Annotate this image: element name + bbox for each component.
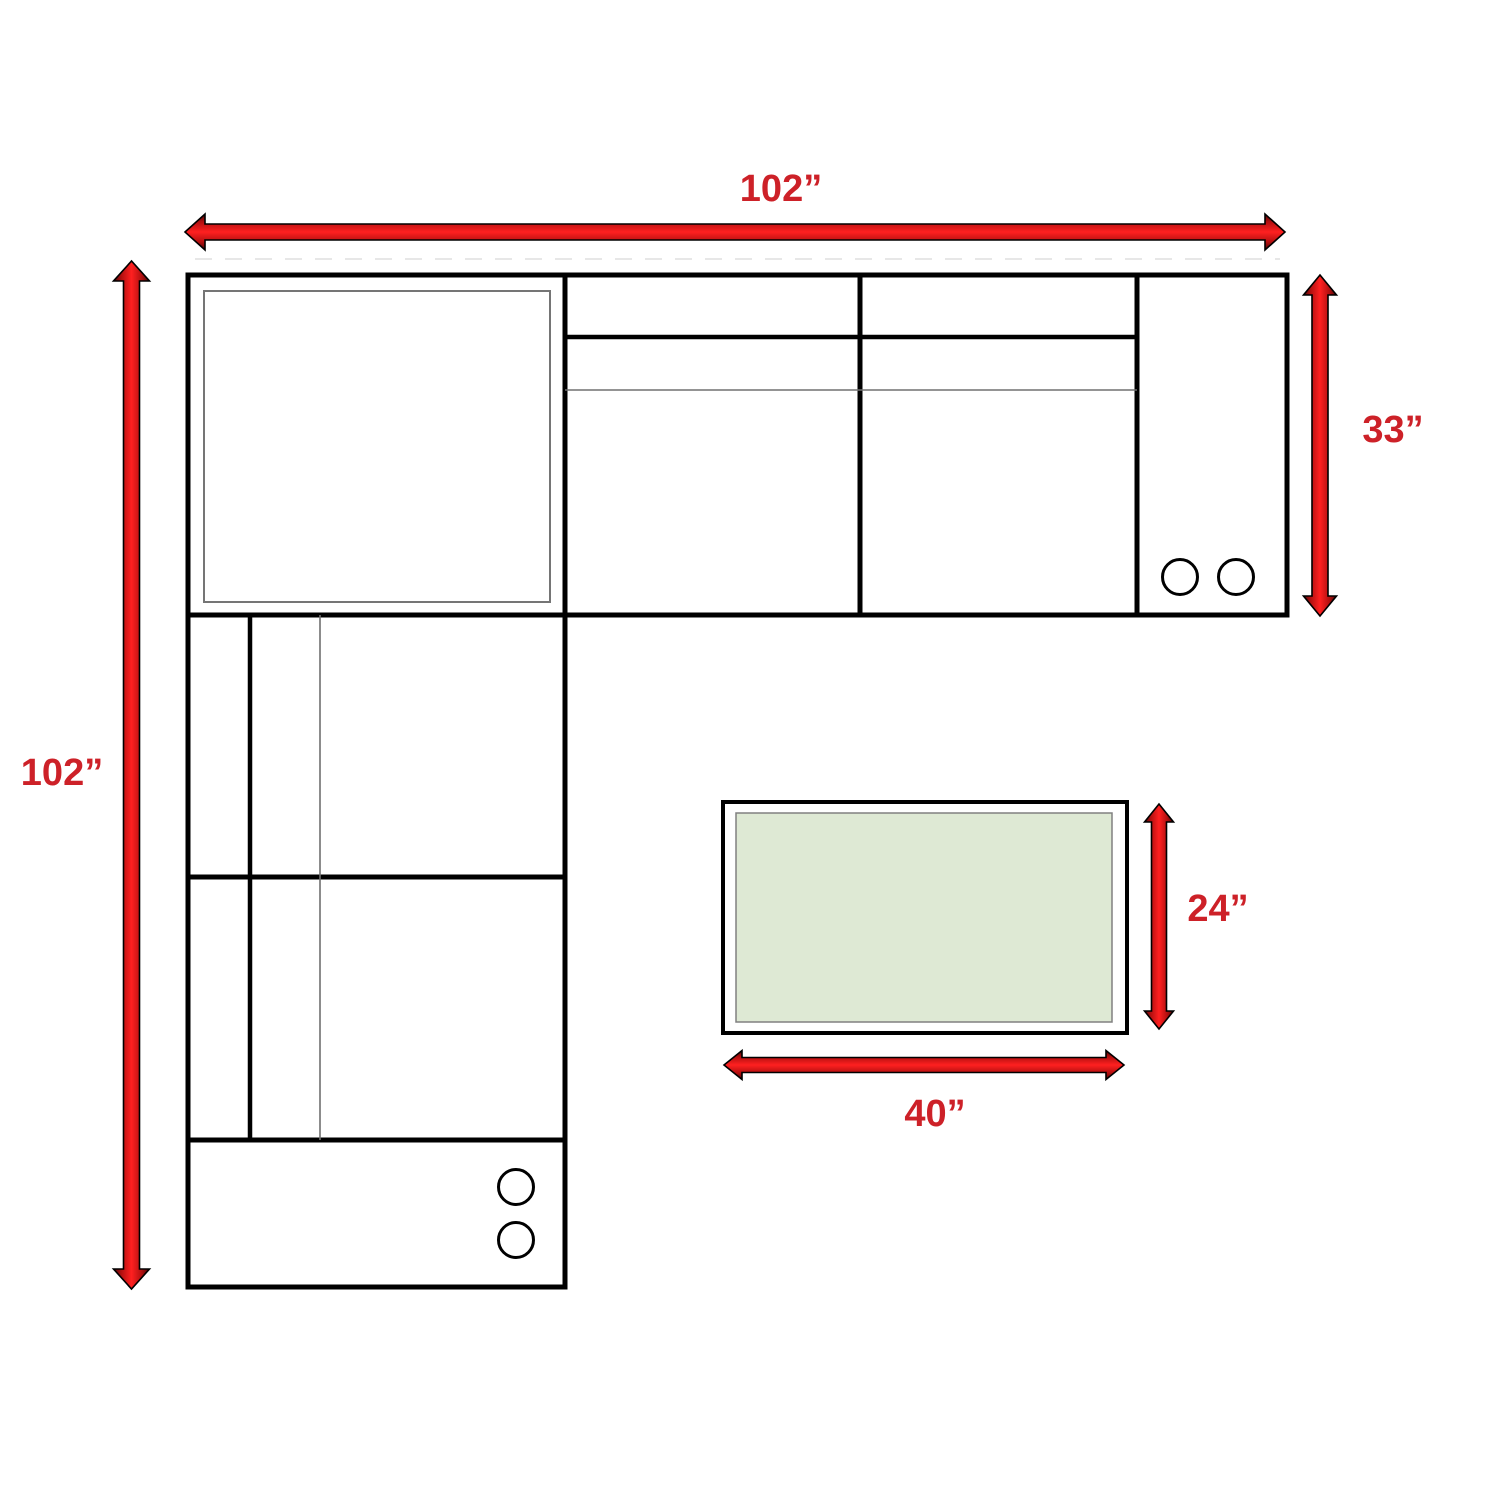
svg-text:102”: 102” — [21, 752, 103, 794]
svg-text:102”: 102” — [740, 168, 822, 210]
svg-text:33”: 33” — [1362, 409, 1423, 451]
svg-text:40”: 40” — [904, 1093, 965, 1135]
svg-text:24”: 24” — [1187, 888, 1248, 930]
